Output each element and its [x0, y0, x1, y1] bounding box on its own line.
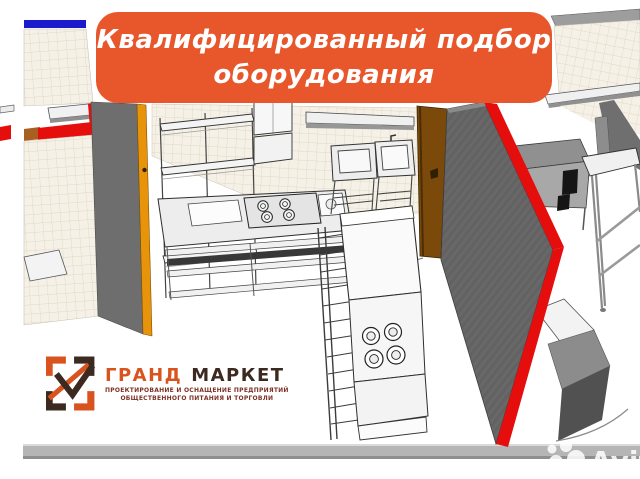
cutting-board: [188, 200, 242, 226]
mini-shelf-far-left: [0, 105, 14, 113]
floor-edge-bar: [23, 444, 640, 459]
condenser-grill2-icon: [557, 194, 570, 211]
logo-mark-icon: [46, 355, 95, 412]
table-legs: [592, 164, 640, 308]
sink1-basin: [338, 149, 371, 173]
logo-subtitle-line2: ОБЩЕСТВЕННОГО ПИТАНИЯ И ТОРГОВЛИ: [105, 395, 289, 403]
cabinet-lower: [254, 133, 292, 164]
avito-watermark: Avito: [548, 440, 640, 478]
logo-title-grand: ГРАНД: [105, 365, 182, 386]
tiled-wall-lower-left: [24, 135, 99, 325]
promo-banner: Квалифицированный подбор оборудования: [96, 12, 552, 103]
door-handle-icon: [142, 168, 146, 172]
island-shelf-board: [169, 276, 353, 298]
avito-watermark-label: Avito: [590, 445, 640, 478]
banner-line1: Квалифицированный подбор: [97, 23, 552, 58]
brown-ledge: [24, 127, 40, 141]
sink2-basin: [381, 145, 409, 170]
avito-logo-icon: [549, 455, 563, 469]
condenser-grill-icon: [562, 169, 578, 195]
avito-logo-icon: [567, 450, 585, 468]
table-top: [582, 148, 640, 176]
gas-stove: [244, 193, 321, 228]
work-table-right: [582, 148, 640, 312]
company-logo: ГРАНДМАРКЕТ ПРОЕКТИРОВАНИЕ И ОСНАЩЕНИЕ П…: [46, 355, 289, 412]
logo-title: ГРАНДМАРКЕТ: [105, 365, 289, 387]
logo-subtitle-line1: ПРОЕКТИРОВАНИЕ И ОСНАЩЕНИЕ ПРЕДПРИЯТИЙ: [105, 387, 289, 395]
pan-well: [326, 199, 336, 209]
counter-behind-wall: [536, 299, 628, 441]
blue-strip: [24, 20, 86, 28]
avito-logo-icon: [560, 440, 572, 452]
table-foot: [600, 308, 606, 312]
banner-line2: оборудования: [213, 58, 434, 93]
avito-logo-icon: [548, 445, 557, 454]
logo-text-block: ГРАНДМАРКЕТ ПРОЕКТИРОВАНИЕ И ОСНАЩЕНИЕ П…: [105, 365, 289, 403]
listing-image: Avito Квалифицированный подбор оборудова…: [0, 0, 640, 479]
logo-title-market: МАРКЕТ: [191, 365, 284, 386]
gray-wall-column: [91, 102, 143, 334]
tiled-wall-upper-left: [24, 29, 93, 106]
fryer-unit: [340, 206, 428, 440]
red-sliver-far-left: [0, 125, 11, 141]
